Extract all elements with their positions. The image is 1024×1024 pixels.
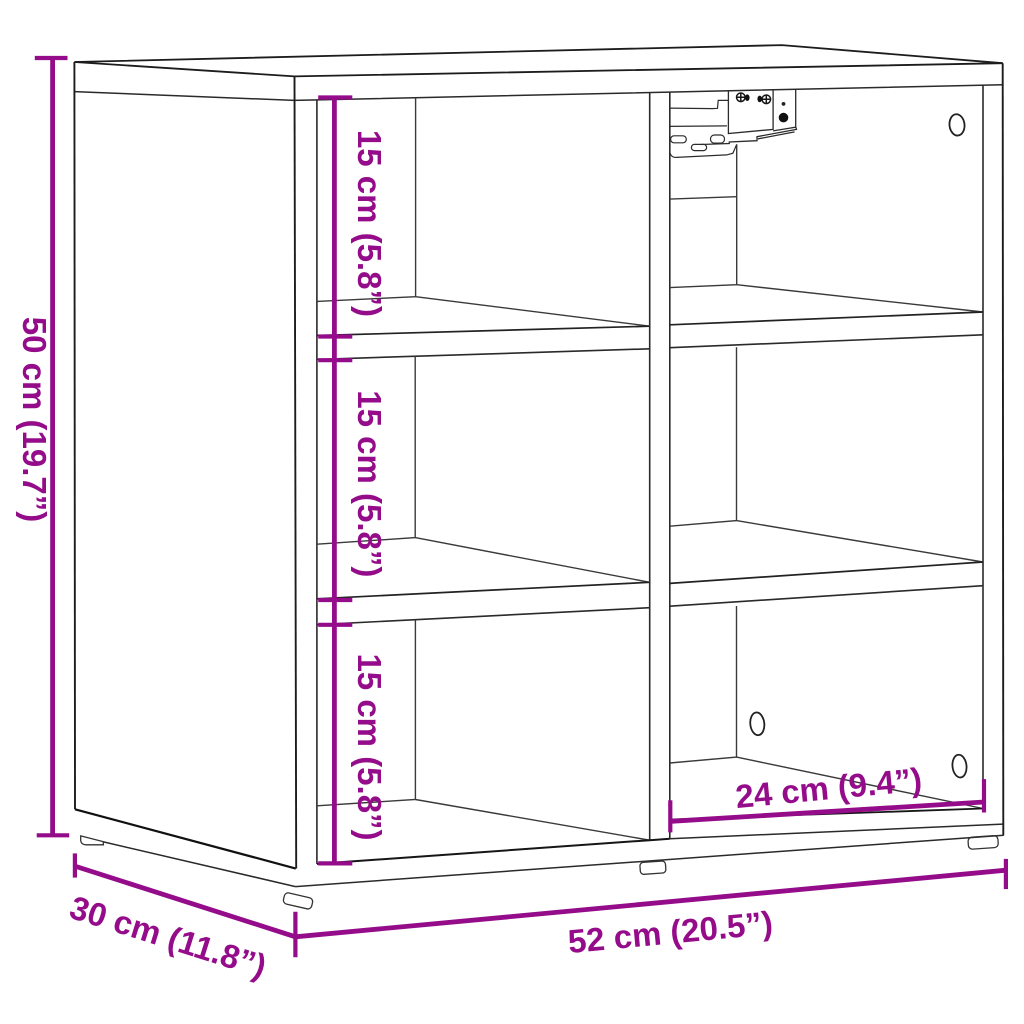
svg-text:52 cm (20.5”): 52 cm (20.5”) xyxy=(566,904,774,960)
svg-text:50 cm (19.7”): 50 cm (19.7”) xyxy=(16,317,53,522)
svg-text:15 cm (5.8”): 15 cm (5.8”) xyxy=(351,130,388,317)
svg-text:30 cm (11.8”): 30 cm (11.8”) xyxy=(65,888,270,985)
svg-text:15 cm (5.8”): 15 cm (5.8”) xyxy=(351,390,388,577)
svg-text:15 cm (5.8”): 15 cm (5.8”) xyxy=(351,653,388,840)
